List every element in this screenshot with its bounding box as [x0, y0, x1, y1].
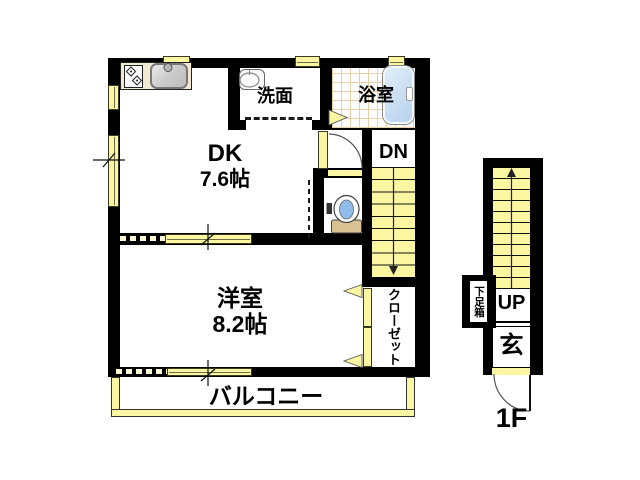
- window-left-dk: [108, 135, 119, 207]
- dashed-opening-dk-westernroom: [120, 236, 165, 241]
- dk-size: 7.6帖: [165, 168, 285, 192]
- wall-below-stairs: [362, 277, 415, 287]
- western-room-name: 洋室: [175, 286, 305, 312]
- stove-icon: [124, 65, 143, 88]
- f1-wall-left: [483, 158, 493, 375]
- closet-label: クローゼット: [382, 287, 404, 367]
- closet-door-triangle-bottom-icon: [344, 355, 362, 368]
- shoe-cabinet-label: 下足箱: [470, 282, 487, 322]
- stairs-up-flight: [493, 168, 530, 289]
- toilet-door-panel: [318, 131, 328, 169]
- wall-stairs-left: [362, 130, 372, 287]
- dk-name: DK: [165, 141, 285, 168]
- dashed-line-dk-boundary: [308, 180, 310, 242]
- toilet-doorway-strip: [328, 170, 362, 176]
- window-westernroom-balcony: [167, 368, 252, 376]
- room-label-bathroom: 浴室: [350, 85, 402, 105]
- closet-door-panel-bottom: [363, 327, 372, 367]
- dashed-opening-bottom-wall: [116, 369, 168, 374]
- room-label-western-room: 洋室 8.2帖: [175, 286, 305, 338]
- room-label-washroom: 洗面: [240, 86, 310, 106]
- f1-step-edge-b: [493, 326, 530, 327]
- dashed-opening-washroom: [245, 117, 312, 120]
- western-room-size: 8.2帖: [175, 312, 305, 338]
- closet-door-triangle-top-icon: [344, 285, 362, 298]
- wall-below-washroom: [228, 120, 246, 130]
- window-top-washroom: [295, 56, 320, 67]
- floorplan-canvas: DK 7.6帖 洗面 浴室 DN 洋室 8.2帖 クローゼット バルコニー UP…: [0, 0, 640, 480]
- sliding-door-dk-westernroom: [165, 234, 252, 244]
- bathtub-step-icon: [406, 87, 413, 101]
- kitchen-sink-icon: [150, 63, 188, 89]
- room-label-dk: DK 7.6帖: [165, 141, 285, 191]
- f1-step-edge-a: [493, 321, 530, 323]
- f1-entrance-door-strip: [492, 368, 530, 375]
- toilet-icon: [327, 196, 362, 234]
- balcony-label: バルコニー: [156, 384, 376, 410]
- stairs-down-flight: [372, 167, 415, 277]
- closet-door-panel-top: [363, 288, 372, 327]
- stairs-up-label: UP: [493, 292, 530, 314]
- floor1-label: 1F: [489, 403, 534, 433]
- wall-right: [415, 58, 430, 377]
- toilet-door-arc-icon: [329, 134, 362, 168]
- window-left-kitchen: [108, 85, 119, 110]
- stairs-down-label: DN: [372, 141, 415, 163]
- f1-wall-right: [530, 158, 543, 375]
- entrance-label: 玄: [493, 333, 530, 360]
- balcony-rail-bottom: [111, 409, 415, 417]
